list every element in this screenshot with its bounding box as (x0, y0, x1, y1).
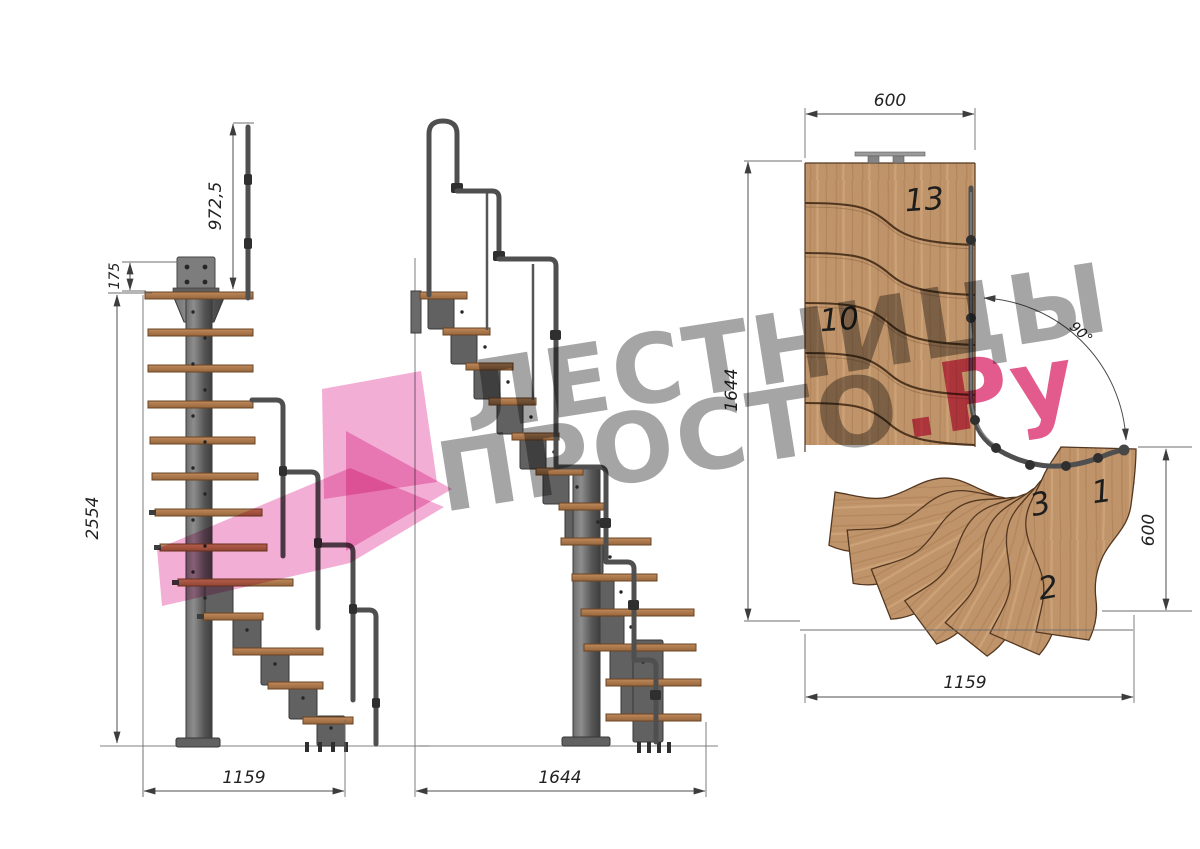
staircase-drawing: 2554 175 972,5 1159 (0, 0, 1200, 849)
dim-label-600-top: 600 (874, 91, 906, 111)
dim-side-width: 1159 (143, 720, 345, 797)
dim-side-plate-height: 175 (107, 262, 178, 291)
step-label-13: 13 (903, 181, 945, 220)
side-mounting-plate (173, 257, 219, 293)
dim-label-1159-plan: 1159 (943, 673, 986, 693)
dim-label-600-right: 600 (1139, 514, 1159, 546)
dim-plan-top-width: 600 (805, 91, 975, 158)
plan-wall-bracket (855, 152, 925, 163)
dim-side-total-height: 2554 (83, 293, 152, 743)
dim-label-1644-front: 1644 (538, 768, 581, 788)
dim-label-1159-side: 1159 (222, 768, 265, 788)
dim-label-175: 175 (107, 263, 123, 290)
dim-label-972-5: 972,5 (206, 182, 226, 231)
drawing-canvas: 2554 175 972,5 1159 (0, 0, 1200, 849)
side-central-column (172, 293, 226, 747)
dim-label-2554: 2554 (83, 496, 103, 539)
side-module-blocks (205, 583, 348, 752)
